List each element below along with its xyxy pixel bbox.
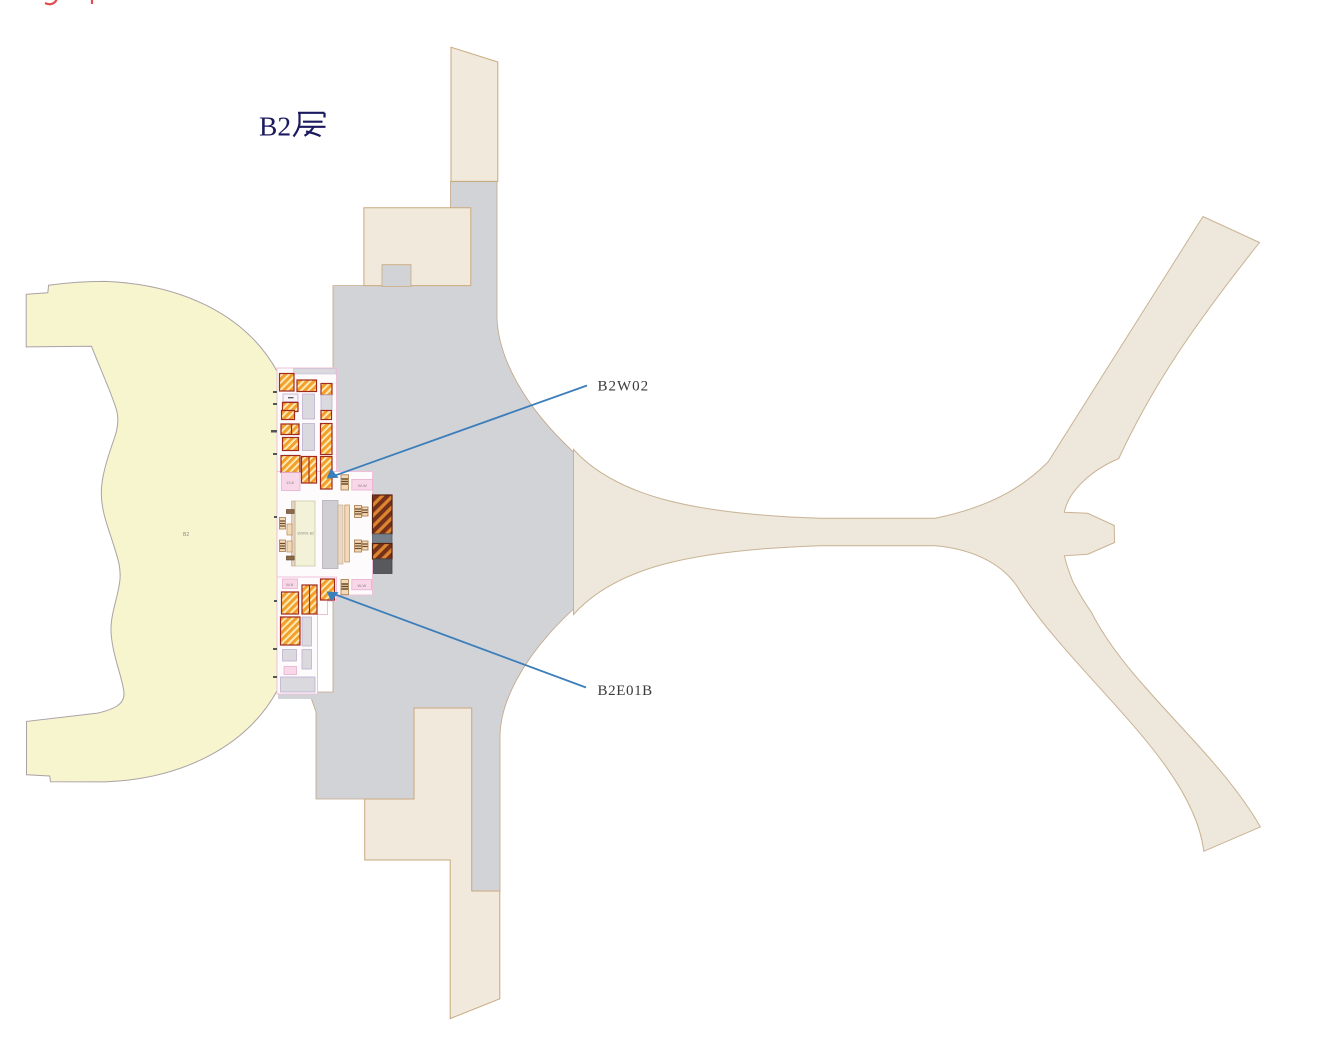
- svg-text:B2W02: B2W02: [598, 379, 650, 395]
- svg-text:B2E01B: B2E01B: [598, 683, 653, 699]
- svg-text:W-W: W-W: [358, 483, 367, 488]
- svg-text:B2W01-B2: B2W01-B2: [298, 532, 315, 536]
- svg-text:W-8: W-8: [286, 582, 294, 587]
- svg-text:W-W: W-W: [358, 583, 367, 588]
- svg-text:13.8: 13.8: [286, 480, 295, 485]
- svg-text:B2: B2: [259, 111, 291, 142]
- svg-text:B2: B2: [183, 532, 189, 538]
